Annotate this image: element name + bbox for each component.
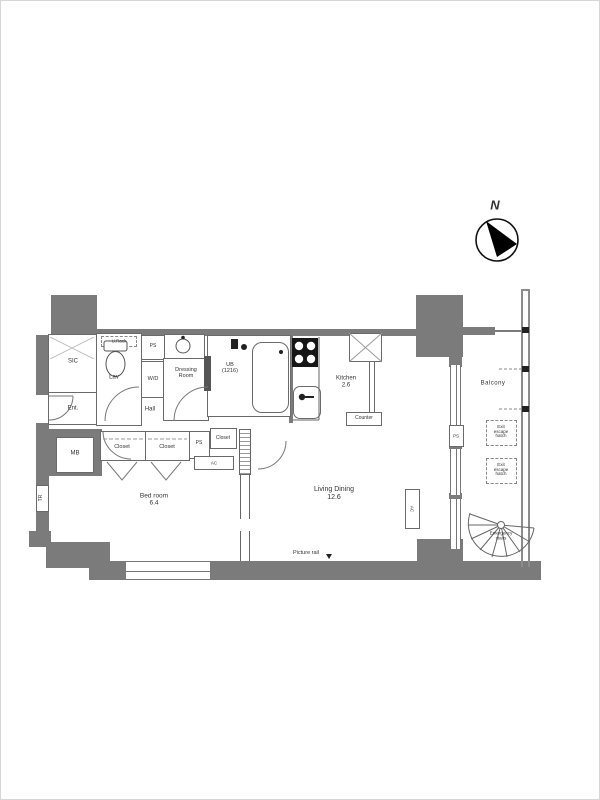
living-balcony-window-2 [450, 449, 461, 495]
label-lav: Lav [109, 375, 119, 382]
compass-icon [476, 219, 518, 261]
label-balcony: Balcony [481, 381, 506, 388]
bathtub [252, 342, 289, 413]
closet-divider [145, 431, 146, 461]
label-ub-line2: (1216) [222, 368, 238, 374]
balcony-rail-outer [528, 289, 530, 567]
living-door-arc [258, 441, 286, 469]
wall-left-mid [36, 423, 49, 485]
label-entrance: Ent. [68, 406, 79, 413]
label-ps-balcony: PS [453, 433, 459, 438]
label-stairs-line2: stairs [490, 536, 513, 541]
balcony-partitions [499, 327, 529, 412]
label-living-name: Living Dining [314, 486, 354, 494]
label-ac-bedroom: AC [211, 460, 217, 465]
label-ac-living: AC [409, 506, 414, 512]
balcony-rail-inner [521, 289, 523, 567]
picture-rail-arrow [326, 554, 332, 559]
label-sic: SIC [68, 359, 78, 366]
wall-right-seg-1 [449, 339, 462, 367]
wall-top-left-block [51, 295, 97, 337]
label-living-dining: Living Dining 12.6 [314, 486, 354, 502]
label-dressing-room: Dressing Room [175, 367, 197, 379]
floor-plan-page: SIC U.Rack Lav PS W/D Dressing Room UB (… [0, 0, 600, 800]
label-closet-small: Closet [216, 436, 230, 442]
label-wd: W/D [148, 376, 159, 382]
label-compass-north: N [490, 199, 499, 214]
label-kitchen-name: Kitchen [336, 375, 356, 382]
closet-door-marks [107, 462, 181, 480]
living-balcony-window-1 [450, 365, 461, 429]
label-hatch1-line3: hatch [494, 434, 509, 439]
duct-hatch [239, 429, 251, 475]
label-kitchen: Kitchen 2.6 [336, 375, 356, 388]
bedroom-living-wall-lower [240, 531, 250, 561]
label-trunk-room: TR [39, 495, 45, 502]
wall-right-seg-4 [449, 547, 462, 563]
label-meter-box: MB [71, 451, 80, 458]
label-living-size: 12.6 [314, 494, 354, 502]
balcony-rail-cap [521, 289, 530, 291]
living-balcony-window-3 [450, 499, 461, 549]
label-hatch2-line3: hatch [494, 472, 509, 477]
kitchen-sink [293, 386, 321, 419]
label-counter: Counter [355, 416, 373, 422]
label-closet-1: Closet [114, 444, 130, 450]
label-closet-2: Closet [159, 444, 175, 450]
label-ps-top: PS [150, 344, 157, 350]
vanity-counter [164, 334, 205, 359]
label-bedroom-size: 6.4 [140, 500, 168, 507]
wall-balcony-arm-line [493, 330, 523, 332]
label-hall: Hall [145, 407, 155, 414]
bedroom-window [126, 561, 210, 580]
label-dressing-line2: Room [175, 373, 197, 379]
label-bedroom-name: Bed room [140, 493, 168, 500]
bath-door [204, 356, 211, 391]
label-bedroom: Bed room 6.4 [140, 493, 168, 508]
label-unit-bath: UB (1216) [222, 362, 238, 374]
label-picture-rail: Picture rail [293, 550, 319, 556]
stove [292, 338, 318, 367]
label-emergency-stairs: Emergency stairs [490, 531, 513, 540]
bedroom-living-wall-upper [240, 475, 250, 519]
label-escape-hatch-2: Exit escape hatch [494, 463, 509, 477]
counter-wall [369, 361, 375, 413]
label-ps-mid: PS [196, 441, 203, 447]
label-escape-hatch-1: Exit escape hatch [494, 425, 509, 439]
label-u-rack: U.Rack [112, 338, 127, 343]
range-hood-box [349, 333, 382, 362]
label-kitchen-size: 2.6 [336, 382, 356, 389]
wall-balcony-arm [459, 327, 495, 335]
